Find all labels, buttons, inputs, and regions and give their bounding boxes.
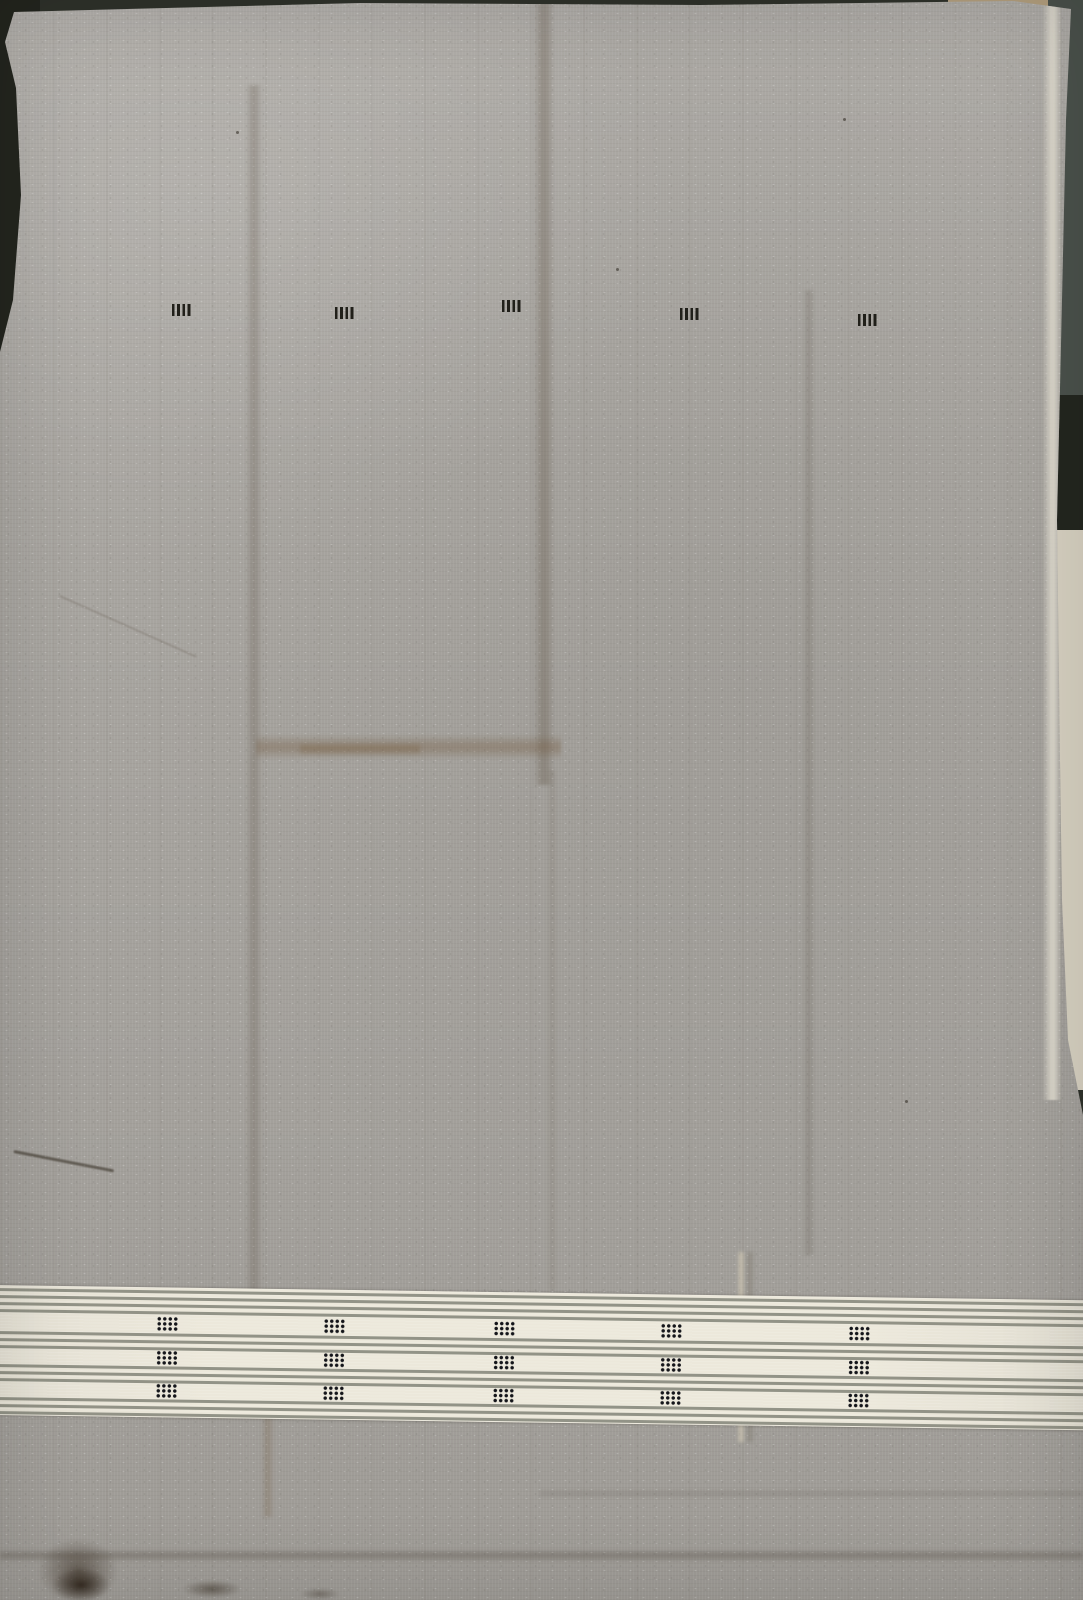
fabric-photo xyxy=(0,0,1083,1600)
top-tally-motif-1 xyxy=(172,304,192,316)
fabric-crease-5 xyxy=(256,735,561,759)
border-band xyxy=(0,1285,1083,1430)
fabric-crease-2 xyxy=(534,0,554,785)
band-dot-motif-c4-r1 xyxy=(660,1323,682,1338)
band-dot-motif-c5-r1 xyxy=(848,1326,870,1341)
fabric-crease-13 xyxy=(59,595,197,658)
fabric-crease-7 xyxy=(0,1549,1083,1562)
top-tally-motif-5 xyxy=(858,314,878,326)
dark-stain-2 xyxy=(52,1568,110,1600)
fabric-crease-3 xyxy=(547,770,557,1290)
band-dot-motif-c1-r2 xyxy=(156,1350,178,1365)
fabric-cloth xyxy=(0,0,1083,1600)
fiber-speck-1 xyxy=(616,268,619,271)
band-dot-motif-c5-r2 xyxy=(848,1360,870,1375)
band-dot-motif-c4-r2 xyxy=(660,1357,682,1372)
band-dot-motif-c2-r1 xyxy=(323,1319,345,1334)
band-dot-motif-c2-r3 xyxy=(322,1386,344,1401)
band-dot-motif-c4-r3 xyxy=(659,1390,681,1405)
top-tally-motif-3 xyxy=(502,300,522,312)
band-dot-motif-c5-r3 xyxy=(847,1393,869,1408)
fabric-crease-11 xyxy=(262,1412,274,1517)
top-tally-motif-4 xyxy=(680,308,700,320)
fabric-crease-12 xyxy=(13,1150,114,1172)
top-tally-motif-2 xyxy=(335,307,355,319)
fiber-speck-2 xyxy=(843,118,846,121)
band-dot-motif-c1-r1 xyxy=(156,1316,178,1331)
band-dot-motif-c3-r1 xyxy=(493,1321,515,1336)
band-dot-motif-c3-r3 xyxy=(492,1388,514,1403)
fabric-crease-8 xyxy=(540,1489,1083,1498)
fabric-crease-4 xyxy=(803,290,815,1255)
band-dot-motif-c3-r2 xyxy=(493,1355,515,1370)
fabric-crease-6 xyxy=(300,742,420,756)
dark-stain-4 xyxy=(300,1588,340,1600)
fabric-crease-1 xyxy=(246,85,262,1415)
fiber-speck-4 xyxy=(905,1100,908,1103)
band-dot-motif-c2-r2 xyxy=(323,1353,345,1368)
dark-stain-3 xyxy=(182,1580,242,1598)
fiber-speck-3 xyxy=(236,131,239,134)
band-dot-motif-c1-r3 xyxy=(155,1383,177,1398)
